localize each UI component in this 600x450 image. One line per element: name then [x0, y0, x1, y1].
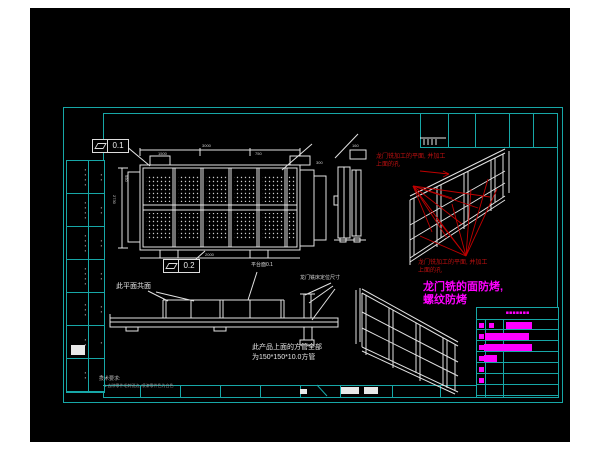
- dim-label: 3000: [202, 143, 211, 148]
- flatness-icon: [164, 260, 179, 272]
- flatness-icon: [93, 140, 108, 152]
- magenta-note-1: 龙门铣的面防烤,: [423, 281, 503, 293]
- red-note-bottom-1: 龙门铣加工的平面, 并加工: [418, 260, 487, 267]
- flatness-frame-bottom: 0.2: [163, 259, 200, 273]
- red-note-top-1: 龙门铣加工的平面, 并加工: [376, 154, 445, 161]
- note-square-tube-1: 此产品上面的方管全部: [252, 344, 322, 352]
- dim-label: 300: [316, 160, 323, 165]
- dim-label: 750: [255, 151, 262, 156]
- note-coplanar: 此平面共面: [116, 283, 151, 291]
- tech-requirements-title: 技术要求:: [99, 377, 120, 383]
- note-platform-flatness: 平台面0.1: [251, 263, 273, 269]
- red-note-bottom-2: 上面的孔: [418, 268, 442, 275]
- dim-label: 160: [352, 143, 359, 148]
- note-square-tube-2: 为150*150*10.0方管: [252, 354, 315, 362]
- dim-label: 950: [124, 175, 129, 182]
- drawing-linework: [0, 0, 600, 450]
- red-note-top-2: 上面的孔: [376, 162, 400, 169]
- flatness-frame-top: 0.1: [92, 139, 129, 153]
- dim-label: 2000: [205, 252, 214, 257]
- tech-requirements-line: 1.去除零件毛刺锐边, 喷漆零件色为白色: [104, 384, 174, 388]
- side-view: [334, 150, 366, 242]
- flatness-value: 0.2: [179, 260, 199, 272]
- magenta-note-2: 螺纹防烤: [423, 294, 467, 306]
- dim-label: 2730: [112, 195, 117, 204]
- misc-marks: [300, 138, 446, 396]
- hatch-panels: [146, 176, 296, 239]
- dim-label: 1500: [158, 151, 167, 156]
- note-gantry-locating: 龙门铣床定位尺寸: [300, 276, 340, 282]
- page: ▪▪▪▪ ▪▪ ▪▪▪▪ ▪▪ ▪▪▪▪ ▪▪ ▪▪▪▪ ▪▪ ▪▪▪ ▪▪ ▪…: [0, 0, 600, 450]
- flatness-value: 0.1: [108, 140, 128, 152]
